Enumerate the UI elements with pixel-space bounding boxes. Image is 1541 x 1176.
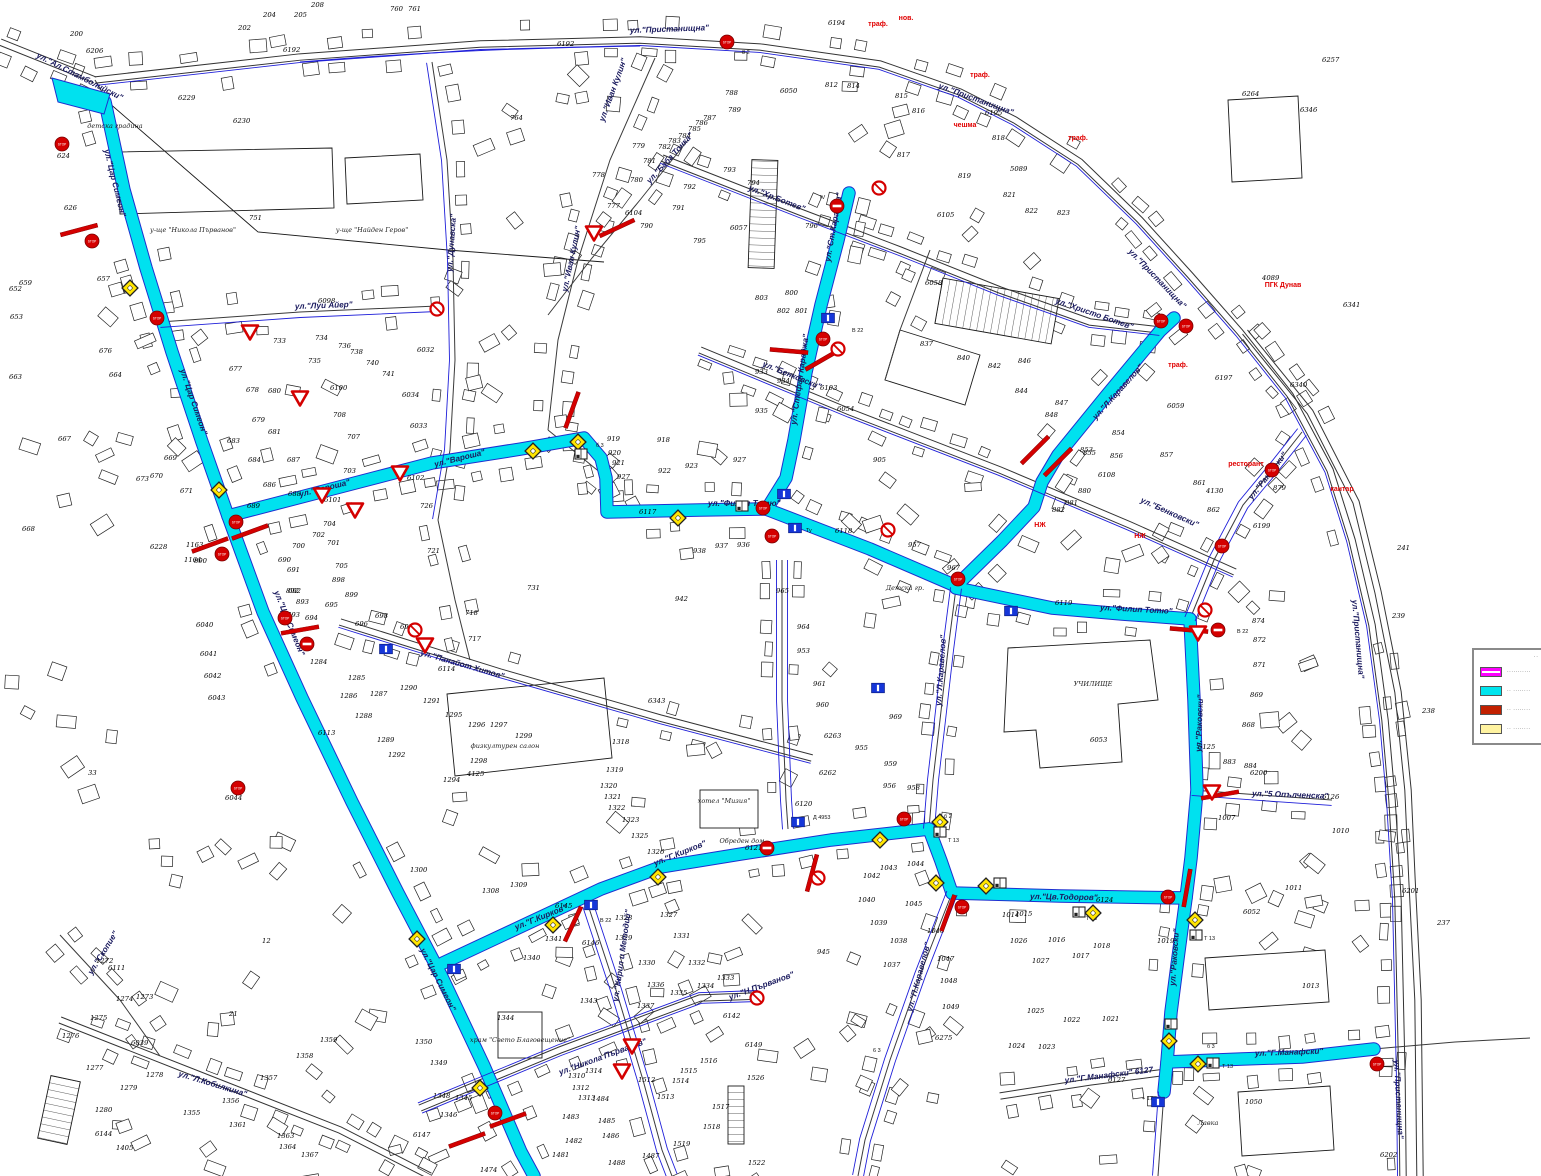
building xyxy=(1227,777,1241,788)
parcel-number: 818 xyxy=(992,134,1006,142)
building xyxy=(1385,815,1398,830)
parcel-number: 740 xyxy=(366,359,380,367)
stop-sign xyxy=(1215,539,1229,553)
parcel-number: 1488 xyxy=(608,1159,626,1167)
parcel-number: 6206 xyxy=(86,47,104,55)
parcel-number: 956 xyxy=(883,782,897,790)
parcel-number: 1327 xyxy=(660,911,678,919)
parcel-number: 1337 xyxy=(637,1002,655,1010)
building xyxy=(257,326,269,335)
map-annotation: В 22 xyxy=(1237,629,1248,635)
parcel-number: 800 xyxy=(785,289,799,297)
parcel-number: 855 xyxy=(1083,449,1096,457)
no-stopping-sign xyxy=(832,343,845,356)
building xyxy=(556,947,573,957)
parcel-number: 958 xyxy=(907,784,921,792)
map-annotation: В 22 xyxy=(852,328,863,334)
building xyxy=(158,247,172,261)
parcel-number: 795 xyxy=(693,237,706,245)
building xyxy=(760,584,769,599)
parcel-number: 6194 xyxy=(828,19,845,27)
legend-swatch-red xyxy=(1480,705,1502,715)
building xyxy=(762,728,772,740)
building xyxy=(1184,1068,1194,1081)
parcel-number: 5089 xyxy=(1010,165,1028,173)
building xyxy=(1247,1033,1256,1044)
hotel-building xyxy=(700,790,758,828)
parcel-number: 1308 xyxy=(482,887,500,895)
building xyxy=(837,849,849,859)
legend-label: ·· ········ xyxy=(1507,688,1531,694)
parcel-number: 1517 xyxy=(712,1103,730,1111)
building xyxy=(534,400,543,411)
building xyxy=(763,25,782,40)
parcel-number: 967 xyxy=(947,564,961,572)
parcel-number: 33 xyxy=(88,769,97,777)
poi-label: у-ще "Никола Първанов" xyxy=(149,226,236,234)
parcel-number: 703 xyxy=(343,467,356,475)
parcel-number: 6041 xyxy=(200,650,217,658)
building xyxy=(149,839,160,849)
parcel-number: 704 xyxy=(323,520,336,528)
parcel-number: 1011 xyxy=(1285,884,1302,892)
building xyxy=(1204,818,1217,830)
stop-sign xyxy=(215,547,229,561)
building xyxy=(522,863,539,876)
building xyxy=(1203,1073,1220,1081)
parcel-number: 1289 xyxy=(377,736,395,744)
no-stopping-sign xyxy=(1199,604,1212,617)
legend-swatch-yellow xyxy=(1480,724,1502,734)
parcel-number: 6149 xyxy=(745,1041,763,1049)
parcel-number: 6199 xyxy=(1253,522,1271,530)
parcel-number: 1300 xyxy=(410,866,428,874)
building xyxy=(452,792,467,802)
building xyxy=(1269,591,1285,602)
parcel-number: 1474 xyxy=(480,1166,497,1174)
parcel-number: 837 xyxy=(920,340,934,348)
map-annotation: б 3 xyxy=(1207,1044,1215,1050)
parcel-number: 1275 xyxy=(90,1014,107,1022)
parcel-number: 6124 xyxy=(1096,896,1113,904)
building xyxy=(327,37,342,50)
legend-row-yellow: ·· ········ xyxy=(1480,719,1541,738)
building xyxy=(1387,1158,1395,1170)
building xyxy=(386,60,402,73)
no-entry-sign xyxy=(760,841,774,855)
poi-label: Лавка xyxy=(1197,1119,1219,1127)
parcel-number: 955 xyxy=(855,744,868,752)
parcel-number: 6118 xyxy=(835,527,853,535)
parcel-number: 6104 xyxy=(625,209,642,217)
map-annotation: Т 13 xyxy=(1222,1064,1233,1070)
parcel-number: 1357 xyxy=(260,1074,278,1082)
parcel-number: 1015 xyxy=(1015,910,1032,918)
parcel-number: 871 xyxy=(1253,661,1266,669)
parcel-number: 1350 xyxy=(415,1038,433,1046)
building xyxy=(1090,1058,1104,1068)
parcel-number: 1284 xyxy=(310,658,327,666)
building-block xyxy=(1205,950,1329,1010)
legend-label: ·· ········ xyxy=(1507,707,1531,713)
parcel-number: 960 xyxy=(816,701,830,709)
parcel-number: 6202 xyxy=(1380,1151,1397,1159)
parcel-number: 1331 xyxy=(673,932,690,940)
parcel-number: 1026 xyxy=(1010,937,1028,945)
parcel-number: 856 xyxy=(1110,452,1124,460)
crossing-sign xyxy=(822,313,835,323)
parcel-number: 4125 xyxy=(466,770,484,778)
building xyxy=(1262,800,1278,812)
parcel-number: 687 xyxy=(287,456,301,464)
parcel-number: 1025 xyxy=(1027,1007,1044,1015)
building xyxy=(574,51,588,65)
parcel-number: 6340 xyxy=(1290,381,1308,389)
parcel-number: 1273 xyxy=(136,993,153,1001)
parcel-number: 788 xyxy=(725,89,739,97)
parcel-number: 680 xyxy=(268,387,282,395)
parcel-number: 6197 xyxy=(1215,374,1233,382)
parcel-number: 676 xyxy=(99,347,113,355)
stop-sign xyxy=(229,515,243,529)
stop-sign xyxy=(720,35,734,49)
building xyxy=(1379,923,1388,940)
building xyxy=(577,483,587,495)
parcel-number: 1290 xyxy=(400,684,418,692)
parcel-number: 781 xyxy=(643,157,656,165)
parcel-number: 6105 xyxy=(937,211,954,219)
building xyxy=(768,782,776,792)
legend-row-cyan: ·· ········ xyxy=(1480,681,1541,700)
utility-box xyxy=(994,878,1006,888)
building xyxy=(853,807,866,818)
parcel-number: 823 xyxy=(1057,209,1070,217)
parcel-number: 1484 xyxy=(592,1095,609,1103)
parcel-number: 1355 xyxy=(183,1109,200,1117)
building xyxy=(908,805,920,813)
poi-label: Обреден дом xyxy=(719,837,764,845)
parcel-number: 718 xyxy=(465,609,479,617)
building xyxy=(761,662,773,677)
parcel-number: 6343 xyxy=(648,697,665,705)
building xyxy=(494,424,505,434)
building xyxy=(456,161,465,177)
legend-label: ··········· xyxy=(1507,669,1531,675)
parcel-number: 890 xyxy=(194,557,208,565)
building xyxy=(1125,627,1137,636)
parcel-number: 1515 xyxy=(680,1067,697,1075)
building xyxy=(945,759,954,775)
parcel-number: 1359 xyxy=(320,1036,338,1044)
parcel-number: 701 xyxy=(327,539,340,547)
parcel-number: 935 xyxy=(755,407,768,415)
parcel-number: 760 xyxy=(390,5,404,13)
building xyxy=(686,743,705,756)
parcel-number: 12 xyxy=(262,937,271,945)
parcel-number: 782 xyxy=(658,143,671,151)
parcel-number: 840 xyxy=(957,354,971,362)
parcel-number: 869 xyxy=(1250,691,1264,699)
parcel-number: 1363 xyxy=(277,1132,294,1140)
building xyxy=(226,292,237,304)
building xyxy=(723,372,734,384)
parcel-number: 1007 xyxy=(1218,814,1236,822)
building xyxy=(760,620,772,634)
parcel-number: 1323 xyxy=(622,816,639,824)
no-entry-sign xyxy=(300,637,314,651)
parcel-number: 1274 xyxy=(116,995,133,1003)
parcel-number: 6100 xyxy=(330,384,348,392)
parcel-number: 844 xyxy=(1015,387,1028,395)
parcel-number: 708 xyxy=(333,411,347,419)
parcel-number: 898 xyxy=(332,576,346,584)
poi-label: у-ще "Найден Геров" xyxy=(335,226,408,234)
building xyxy=(705,483,714,492)
parcel-number: 6058 xyxy=(925,279,943,287)
building xyxy=(1210,679,1224,690)
building xyxy=(850,66,865,77)
parcel-number: 957 xyxy=(908,541,922,549)
parcel-number: 1279 xyxy=(120,1084,138,1092)
building xyxy=(1390,653,1399,669)
building xyxy=(789,665,798,675)
parcel-number: 1485 xyxy=(598,1117,615,1125)
parcel-number: 1319 xyxy=(606,766,624,774)
parcel-number: 6230 xyxy=(233,117,251,125)
poi-label: УЧИЛИЩЕ xyxy=(1074,680,1113,688)
parcel-number: 1356 xyxy=(222,1097,240,1105)
building xyxy=(1305,1033,1316,1043)
parcel-number: 738 xyxy=(350,348,364,356)
building xyxy=(106,730,118,744)
utility-box xyxy=(1207,1058,1219,1068)
parcel-number: 6040 xyxy=(196,621,214,629)
parcel-number: 6264 xyxy=(1242,90,1259,98)
building xyxy=(225,321,243,334)
red-poi-label: ресторант xyxy=(1228,461,1264,468)
building xyxy=(1378,830,1395,842)
parcel-number: 6032 xyxy=(417,346,434,354)
parcel-number: 1516 xyxy=(700,1057,718,1065)
building xyxy=(445,84,460,102)
building xyxy=(1149,591,1161,601)
building xyxy=(947,726,957,737)
building xyxy=(1375,1025,1390,1038)
parcel-number: 6117 xyxy=(639,508,657,516)
parcel-number: 920 xyxy=(608,449,622,457)
legend-swatch-magenta xyxy=(1480,667,1502,677)
map-canvas[interactable]: STOP xyxy=(0,0,1541,1176)
parcel-number: 652 xyxy=(9,285,22,293)
parcel-number: 1526 xyxy=(747,1074,765,1082)
building xyxy=(965,483,982,492)
building xyxy=(432,389,441,401)
parcel-number: 905 xyxy=(873,456,886,464)
parcel-number: 664 xyxy=(109,371,122,379)
utility-box xyxy=(575,449,587,459)
parcel-number: 1312 xyxy=(572,1084,589,1092)
parcel-number: 1299 xyxy=(515,732,533,740)
parcel-number: 881 xyxy=(1065,499,1078,507)
map-annotation: 8 2 xyxy=(742,50,750,56)
parcel-number: 1287 xyxy=(370,690,388,698)
parcel-number: 6192 xyxy=(557,40,574,48)
legend-row-magenta: ··········· xyxy=(1480,662,1541,681)
building-block xyxy=(1238,1086,1334,1156)
parcel-number: 1358 xyxy=(296,1052,314,1060)
parcel-number: 821 xyxy=(1003,191,1016,199)
crossing-sign xyxy=(380,644,393,654)
building xyxy=(1307,1072,1321,1084)
parcel-number: 6275 xyxy=(935,1034,952,1042)
parcel-number: 4130 xyxy=(1205,487,1224,495)
poi-label: Детска гр. xyxy=(885,584,924,592)
building xyxy=(772,865,785,877)
parcel-number: 1519 xyxy=(673,1140,691,1148)
parcel-number: 1040 xyxy=(858,896,876,904)
building xyxy=(1390,865,1403,877)
parcel-number: 814 xyxy=(847,82,860,90)
no-entry-sign xyxy=(1211,623,1225,637)
parcel-number: 1296 xyxy=(468,721,486,729)
utility-box xyxy=(934,827,946,837)
parcel-number: 6147 xyxy=(413,1131,431,1139)
parcel-number: 857 xyxy=(1160,451,1174,459)
parcel-number: 1345 xyxy=(455,1094,472,1102)
stop-sign xyxy=(955,900,969,914)
parcel-number: 726 xyxy=(420,502,434,510)
parcel-number: 789 xyxy=(728,106,742,114)
red-poi-label: кантар xyxy=(1330,486,1353,493)
crossing-sign xyxy=(778,489,791,499)
building xyxy=(916,1029,932,1044)
parcel-number: 1325 xyxy=(631,832,648,840)
parcel-number: 6228 xyxy=(150,543,168,551)
building xyxy=(1383,697,1391,710)
parcel-number: 663 xyxy=(9,373,22,381)
parcel-number: 1027 xyxy=(1032,957,1050,965)
building xyxy=(647,529,661,538)
parcel-number: 1343 xyxy=(580,997,597,1005)
parcel-number: 803 xyxy=(755,294,768,302)
building xyxy=(740,715,753,728)
parcel-number: 1322 xyxy=(608,804,625,812)
no-entry-sign xyxy=(830,199,844,213)
parcel-number: 1364 xyxy=(279,1143,296,1151)
parcel-number: 1013 xyxy=(1302,982,1319,990)
stop-sign xyxy=(951,572,965,586)
building xyxy=(1391,906,1402,921)
parcel-number: 1321 xyxy=(604,793,621,801)
parcel-number: 938 xyxy=(693,547,707,555)
parcel-number: 1512 xyxy=(638,1076,655,1084)
utility-box xyxy=(1190,930,1202,940)
parcel-number: 6341 xyxy=(1343,301,1360,309)
building xyxy=(1247,1075,1258,1088)
map-stage: STOP xyxy=(0,0,1541,1176)
parcel-number: 1340 xyxy=(523,954,541,962)
building xyxy=(1054,628,1066,636)
parcel-number: 919 xyxy=(607,435,621,443)
building xyxy=(1359,706,1371,724)
parcel-number: 893 xyxy=(296,598,309,606)
building xyxy=(362,290,374,300)
parcel-number: 626 xyxy=(64,204,78,212)
parcel-number: 918 xyxy=(657,436,671,444)
parcel-number: 1024 xyxy=(1008,1042,1025,1050)
parcel-number: 673 xyxy=(136,475,149,483)
parcel-number: 679 xyxy=(252,416,266,424)
building xyxy=(455,195,466,205)
building xyxy=(499,467,514,482)
building xyxy=(1111,330,1126,344)
parcel-number: 1276 xyxy=(62,1032,80,1040)
parcel-number: 923 xyxy=(685,462,698,470)
building xyxy=(665,50,676,62)
parcel-number: 1037 xyxy=(883,961,901,969)
building xyxy=(1149,959,1158,970)
parcel-number: 937 xyxy=(715,542,729,550)
parcel-number: 6263 xyxy=(824,732,841,740)
building xyxy=(462,389,476,401)
utility-box xyxy=(1165,1019,1177,1029)
parcel-number: 204 xyxy=(262,11,276,19)
building xyxy=(329,62,346,73)
map-annotation: Т 13 xyxy=(1204,936,1215,942)
parcel-number: 6120 xyxy=(795,800,813,808)
parcel-number: 721 xyxy=(427,547,440,555)
building xyxy=(650,988,664,997)
parcel-number: 1344 xyxy=(497,1014,514,1022)
red-poi-label: ПГК Дунав xyxy=(1265,282,1302,289)
parcel-number: 6146 xyxy=(582,939,600,947)
stop-sign xyxy=(756,501,770,515)
parcel-number: 692 xyxy=(288,587,301,595)
parcel-number: 1045 xyxy=(905,900,922,908)
building xyxy=(987,613,1000,626)
parcel-number: 6044 xyxy=(225,794,242,802)
building-block xyxy=(345,154,423,204)
building xyxy=(56,715,76,729)
parcel-number: 1487 xyxy=(642,1152,660,1160)
building xyxy=(792,585,804,597)
parcel-number: 812 xyxy=(825,81,838,89)
parcel-number: 791 xyxy=(672,204,685,212)
parcel-number: 1482 xyxy=(565,1137,582,1145)
parcel-number: 200 xyxy=(69,30,84,38)
no-stopping-sign xyxy=(812,872,825,885)
building xyxy=(1077,622,1086,633)
parcel-number: 6034 xyxy=(402,391,419,399)
parcel-number: 6101 xyxy=(324,496,341,504)
parcel-number: 1050 xyxy=(1245,1098,1263,1106)
building xyxy=(94,56,112,68)
legend-label: ·· ········ xyxy=(1507,726,1531,732)
crossing-sign xyxy=(792,817,805,827)
parcel-number: 6108 xyxy=(1098,471,1116,479)
parcel-number: 6144 xyxy=(95,1130,112,1138)
no-stopping-sign xyxy=(431,303,444,316)
parcel-number: 848 xyxy=(1045,411,1059,419)
poi-label: физкултурен салон xyxy=(471,742,540,750)
building xyxy=(169,874,182,888)
parcel-number: 953 xyxy=(797,647,810,655)
legend-row-red: ·· ········ xyxy=(1480,700,1541,719)
parcel-number: 1320 xyxy=(600,782,618,790)
building xyxy=(1348,1030,1359,1040)
building xyxy=(1203,1033,1217,1044)
parcel-number: 1280 xyxy=(95,1106,113,1114)
